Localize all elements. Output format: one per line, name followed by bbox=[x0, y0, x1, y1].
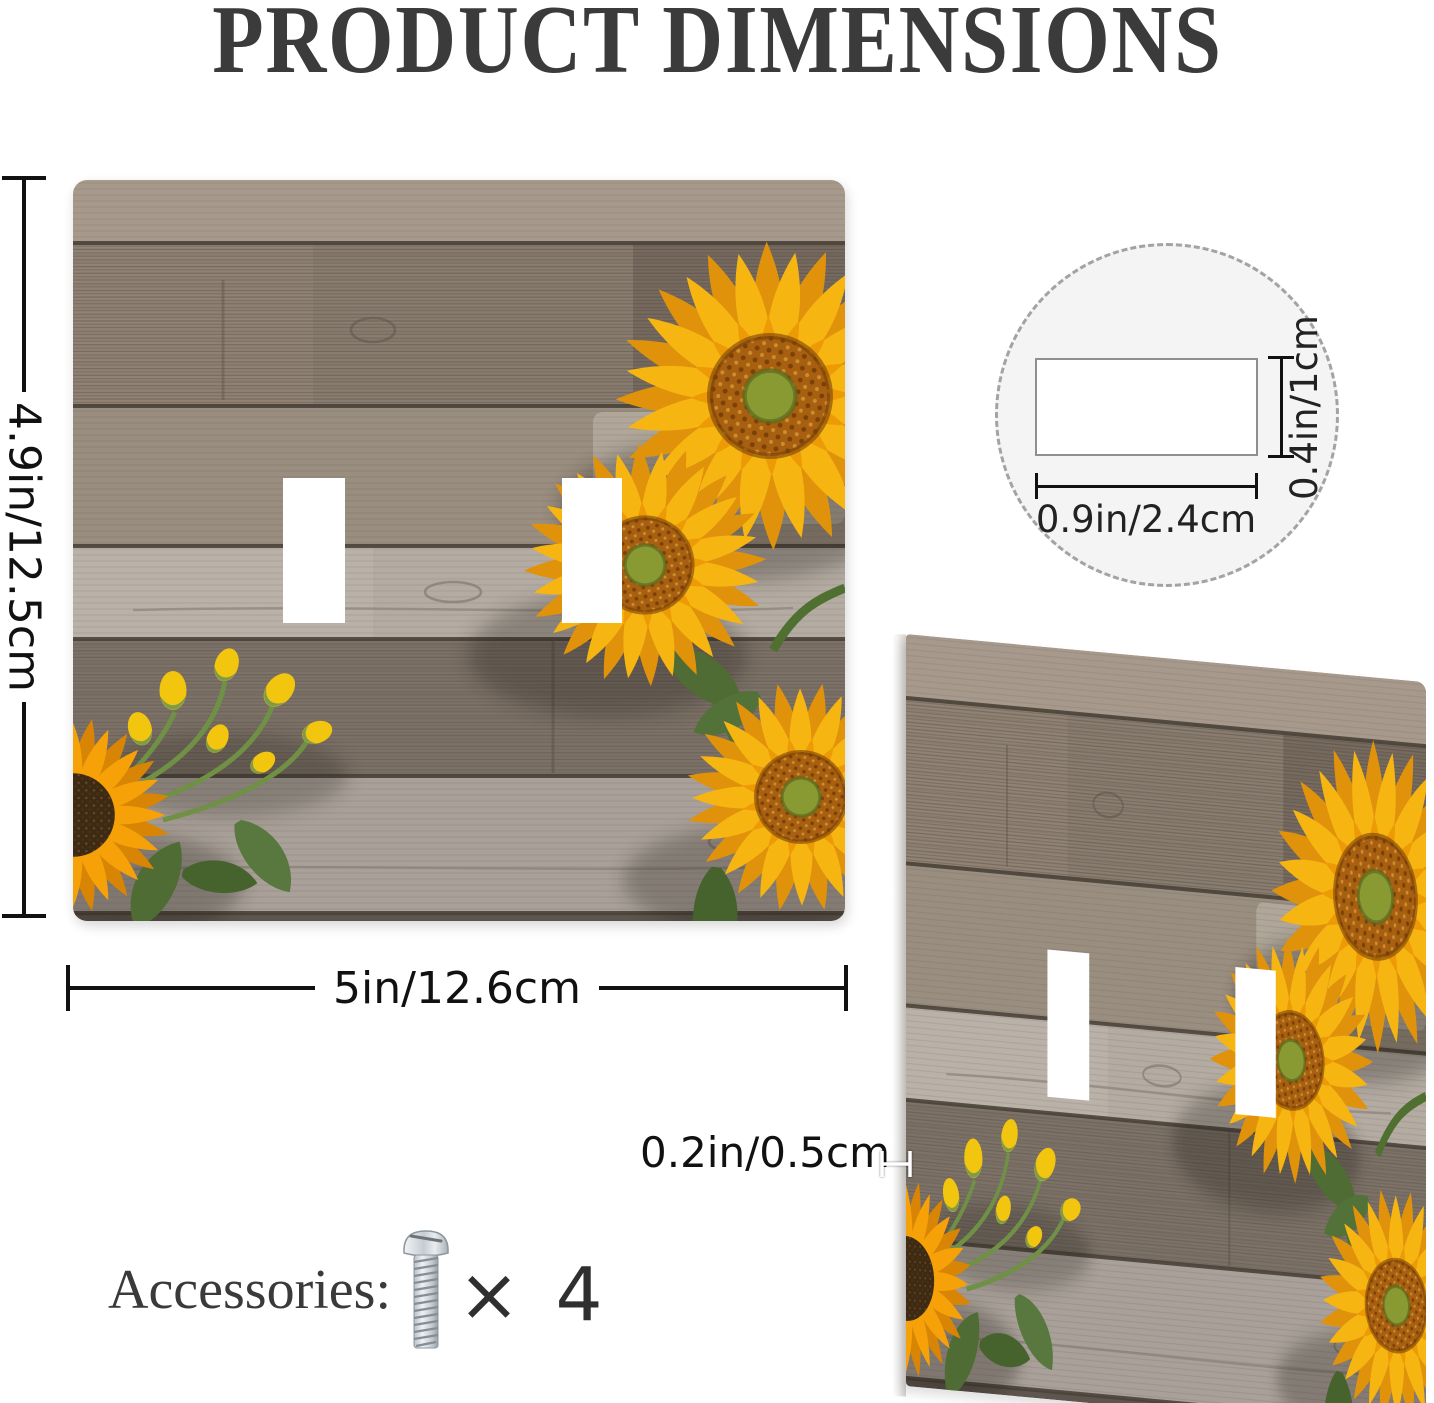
dimension-line-right bbox=[599, 986, 844, 990]
page-title: PRODUCT DIMENSIONS bbox=[0, 0, 1434, 96]
side-view-plate bbox=[891, 628, 1434, 1403]
product-dimensions-infographic: { "title": "PRODUCT DIMENSIONS", "front_… bbox=[0, 0, 1434, 1403]
plate-side-face bbox=[906, 634, 1426, 1403]
cutout-width-label: 0.9in/2.4cm bbox=[1006, 498, 1286, 541]
plate-side-edge bbox=[892, 634, 906, 1396]
cutout-height-label-wrap: 0.4in/1cm bbox=[1282, 358, 1326, 456]
height-dimension-label: 4.9in/12.5cm bbox=[0, 402, 50, 692]
cutout-width-dimension bbox=[1035, 472, 1258, 500]
side-plate-artwork bbox=[906, 634, 1426, 1403]
screw-icon bbox=[398, 1226, 454, 1354]
page-title-text: PRODUCT DIMENSIONS bbox=[212, 0, 1222, 96]
dimension-line bbox=[1038, 485, 1255, 488]
dimension-cap-right bbox=[1255, 473, 1258, 499]
accessories-label: Accessories: bbox=[108, 1258, 391, 1322]
dimension-cap-bottom bbox=[2, 914, 46, 918]
accessories-count: × 4 bbox=[458, 1252, 609, 1338]
width-dimension: 5in/12.6cm bbox=[66, 964, 848, 1012]
cutout-height-label: 0.4in/1cm bbox=[1283, 315, 1326, 500]
dimension-cap-right bbox=[844, 965, 848, 1011]
thickness-dimension-label: 0.2in/0.5cm bbox=[640, 1128, 890, 1177]
width-dimension-label: 5in/12.6cm bbox=[333, 963, 581, 1014]
cutout-detail-circle: 0.9in/2.4cm 0.4in/1cm bbox=[995, 243, 1339, 587]
front-plate-artwork bbox=[73, 180, 845, 921]
thickness-marker-icon bbox=[879, 1146, 913, 1182]
dimension-line-left bbox=[70, 986, 315, 990]
height-dimension: 4.9in/12.5cm bbox=[1, 176, 47, 918]
cutout-rectangle bbox=[1035, 358, 1258, 456]
dimension-line-upper bbox=[22, 180, 26, 392]
dimension-line-lower bbox=[22, 702, 26, 914]
front-plate-image bbox=[73, 180, 845, 921]
